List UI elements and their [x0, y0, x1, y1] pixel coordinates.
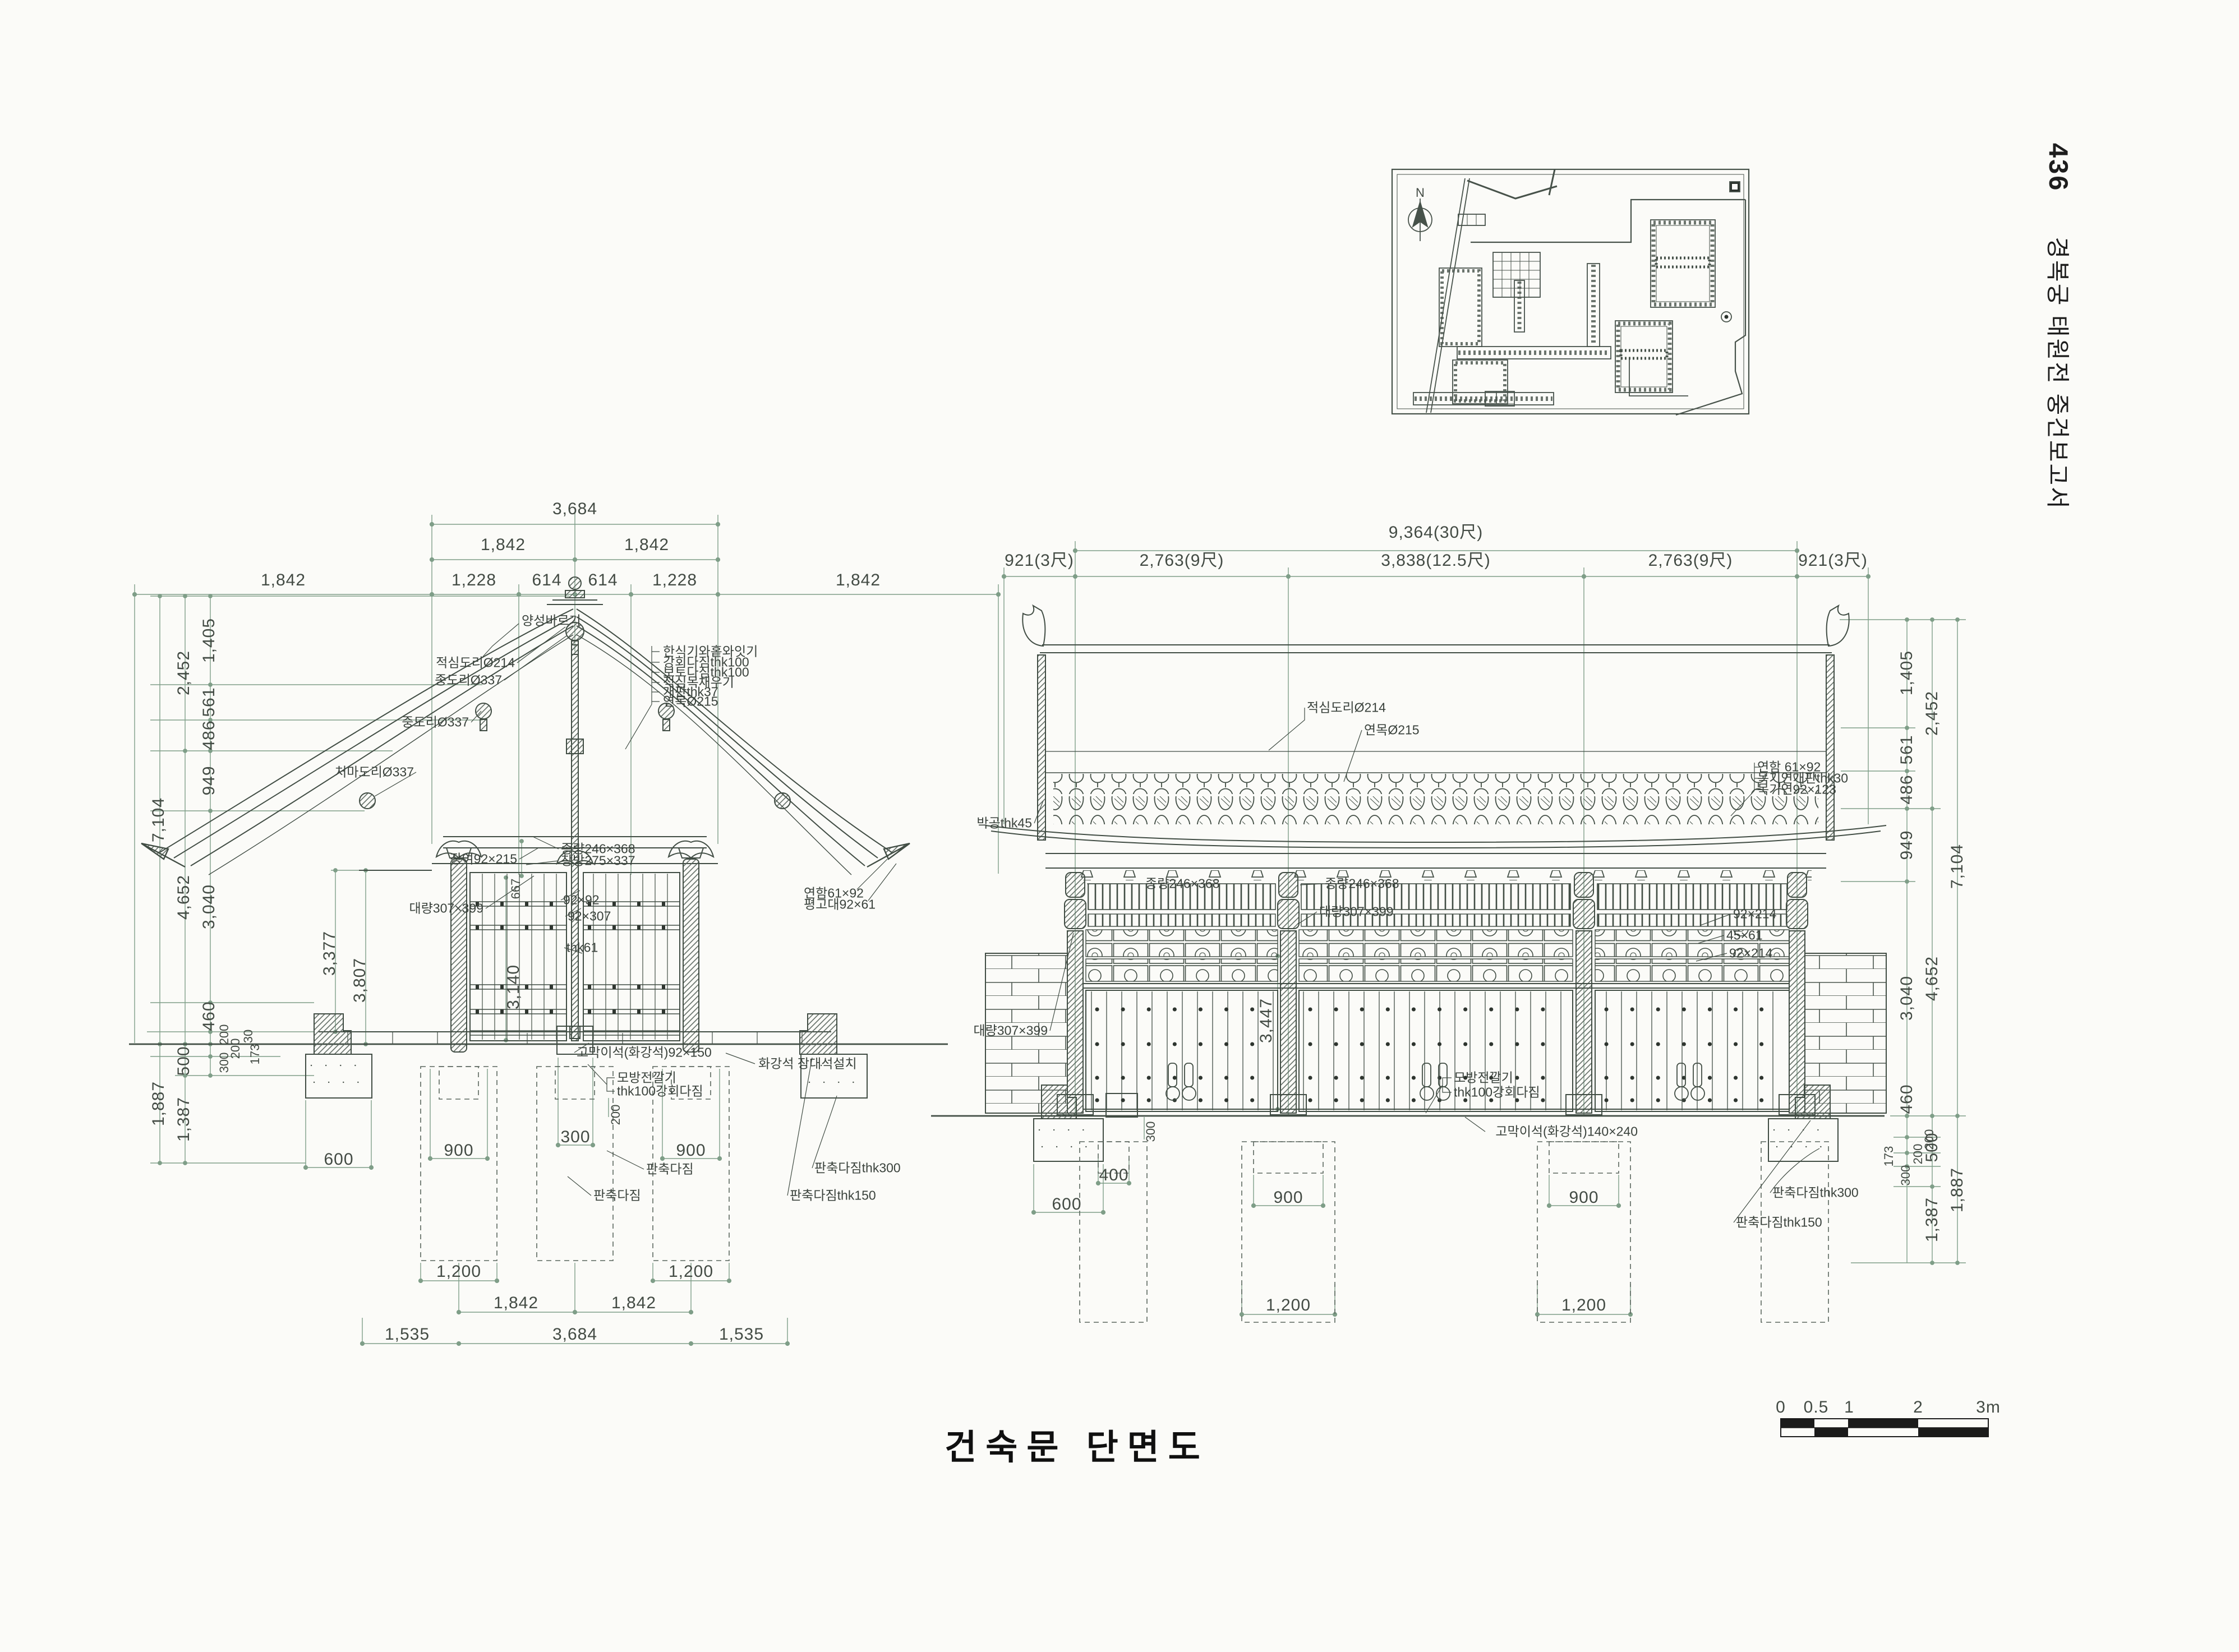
dim-label: 486: [1899, 774, 1915, 804]
annotation-layer: 3,6841,8421,8421,8421,2286146141,2281,84…: [0, 0, 2239, 1652]
dim-label: 1,842: [836, 572, 881, 589]
dim-label: 460: [201, 1001, 218, 1031]
callout-label: 연목Ø215: [1364, 724, 1420, 737]
dim-label: 2,452: [1924, 691, 1941, 736]
dim-label: 500: [176, 1046, 192, 1076]
dim-label: 200: [229, 1039, 242, 1059]
callout-label: 적심도리Ø214: [436, 657, 515, 670]
callout-label: 종량246×368: [1325, 878, 1399, 890]
scanned-report-page: 3,6841,8421,8421,8421,2286146141,2281,84…: [0, 0, 2239, 1652]
callout-label: thk61: [566, 942, 598, 954]
callout-label: 박공thk45: [976, 817, 1032, 830]
drawing-title: 건숙문 단면도: [920, 1419, 1234, 1469]
callout-label: 92×92: [563, 894, 600, 907]
dim-label: 200: [1923, 1129, 1936, 1150]
dim-label: 300: [560, 1129, 590, 1146]
callout-label: 판축다짐thk150: [1736, 1216, 1822, 1229]
callout-label: 종량246×368: [1145, 878, 1220, 890]
dim-label: 460: [1899, 1084, 1915, 1114]
callout-label: 92×307: [568, 910, 611, 923]
dim-label: 9,364(30尺): [1389, 524, 1483, 541]
callout-label: 모방전깔기: [617, 1072, 676, 1085]
dim-label: 921(3尺): [1005, 552, 1074, 569]
callout-label: 45×61: [1726, 929, 1763, 942]
dim-label: 400: [1099, 1167, 1128, 1184]
dim-label: 3,838(12.5尺): [1381, 552, 1490, 569]
dim-label: 1,387: [1924, 1197, 1941, 1242]
dim-label: 561: [1899, 735, 1915, 764]
dim-label: 3,807: [352, 958, 368, 1003]
dim-label: 600: [1052, 1196, 1081, 1213]
callout-label: 창방275×337: [561, 855, 635, 867]
north-label: N: [1416, 187, 1425, 199]
dim-label: 900: [676, 1142, 706, 1159]
dim-label: 1,535: [719, 1326, 764, 1343]
dim-label: 900: [1569, 1189, 1598, 1206]
dim-label: 1,842: [624, 537, 669, 553]
scale-tick-label: 0: [1776, 1399, 1786, 1416]
callout-label: 판축다짐: [646, 1163, 694, 1176]
scale-tick-label: 2: [1913, 1399, 1923, 1416]
dim-label: 1,200: [436, 1263, 481, 1280]
scale-tick-label: 0.5: [1804, 1399, 1829, 1416]
dim-label: 200: [610, 1105, 622, 1125]
callout-label: thk100강회다짐: [617, 1085, 703, 1098]
dim-label: 4,652: [176, 875, 192, 920]
dim-label: 300: [1900, 1165, 1912, 1186]
dim-label: 1,842: [611, 1295, 656, 1312]
callout-label: 목기연92×123: [1757, 783, 1836, 796]
dim-label: 900: [444, 1142, 473, 1159]
dim-label: 614: [532, 572, 561, 589]
callout-label: 판축다짐thk150: [790, 1189, 876, 1202]
dim-label: 2,452: [176, 650, 192, 695]
callout-label: 판축다짐: [593, 1189, 641, 1202]
dim-label: 1,405: [1899, 650, 1915, 695]
dim-label: 1,200: [1266, 1297, 1311, 1314]
dim-label: 3,684: [552, 1326, 597, 1343]
dim-label: 1,228: [452, 572, 496, 589]
dim-label: 7,104: [1949, 844, 1966, 889]
callout-label: 평고대92×61: [804, 898, 876, 911]
callout-label: 92×214: [1733, 908, 1776, 921]
dim-label: 1,387: [176, 1097, 192, 1142]
dim-label: 1,200: [1561, 1297, 1606, 1314]
dim-label: 3,140: [505, 965, 522, 1009]
dim-label: 614: [588, 572, 618, 589]
dim-label: 1,405: [201, 618, 218, 663]
dim-label: 3,447: [1258, 998, 1275, 1043]
dim-label: 1,842: [261, 572, 306, 589]
dim-label: 300: [1145, 1122, 1157, 1142]
dim-label: 300: [218, 1053, 231, 1073]
dim-label: 30: [242, 1030, 255, 1043]
dim-label: 667: [510, 879, 522, 899]
callout-label: 고막이석(화강석)140×240: [1495, 1125, 1638, 1138]
dim-label: 561: [201, 687, 218, 717]
callout-label: 적심도리Ø214: [1307, 702, 1386, 714]
dim-label: 1,842: [481, 537, 526, 553]
callout-label: 대량307×399: [1319, 906, 1394, 919]
callout-label: 양성바르기: [522, 615, 581, 627]
callout-label: 대량307×399: [973, 1025, 1048, 1037]
callout-label: 중도리Ø337: [402, 716, 469, 729]
callout-label: 판축다짐thk300: [1772, 1187, 1859, 1199]
callout-label: 판축다짐thk300: [814, 1162, 901, 1175]
dim-label: 1,535: [385, 1326, 430, 1343]
dim-label: 173: [249, 1044, 261, 1065]
dim-label: 3,040: [201, 884, 218, 929]
callout-label: 종도리Ø337: [435, 674, 502, 687]
dim-label: 1,200: [669, 1263, 713, 1280]
dim-label: 900: [1273, 1189, 1303, 1206]
dim-label: 7,104: [150, 797, 167, 842]
dim-label: 486: [201, 720, 218, 750]
dim-label: 3,684: [552, 501, 597, 518]
dim-label: 1,228: [652, 572, 697, 589]
report-title: 경복궁 태원전 중건보고서: [2044, 237, 2071, 510]
dim-label: 921(3尺): [1798, 552, 1868, 569]
callout-label: 대량307×399: [409, 902, 483, 915]
scale-tick-label: 3m: [1976, 1399, 2001, 1416]
dim-label: 2,763(9尺): [1140, 552, 1224, 569]
dim-label: 949: [1899, 830, 1915, 860]
dim-label: 1,887: [1949, 1168, 1966, 1212]
dim-label: 4,652: [1924, 956, 1941, 1001]
dim-label: 3,040: [1899, 976, 1915, 1021]
dim-label: 949: [201, 765, 218, 795]
page-margin-text: 436경복궁 태원전 중건보고서: [2042, 143, 2076, 510]
dim-label: 600: [324, 1151, 353, 1168]
dim-label: 2,763(9尺): [1648, 552, 1733, 569]
dim-label: 1,887: [150, 1081, 167, 1126]
callout-label: 연목Ø215: [663, 695, 718, 708]
scale-tick-label: 1: [1844, 1399, 1854, 1416]
callout-label: 92×214: [1729, 947, 1772, 960]
callout-label: 처마도리Ø337: [335, 766, 414, 779]
dim-label: 173: [1883, 1146, 1895, 1167]
page-number: 436: [2044, 143, 2074, 192]
callout-label: 고막이석(화강석)92×150: [577, 1046, 712, 1059]
callout-label: thk100강회다짐: [1454, 1086, 1540, 1099]
callout-label: 화강석 장대석설치: [758, 1058, 857, 1070]
callout-label: 모방전깔기: [1454, 1072, 1513, 1085]
dim-label: 1,842: [494, 1295, 538, 1312]
dim-label: 3,377: [321, 931, 338, 976]
callout-label: 장여92×215: [450, 853, 517, 866]
